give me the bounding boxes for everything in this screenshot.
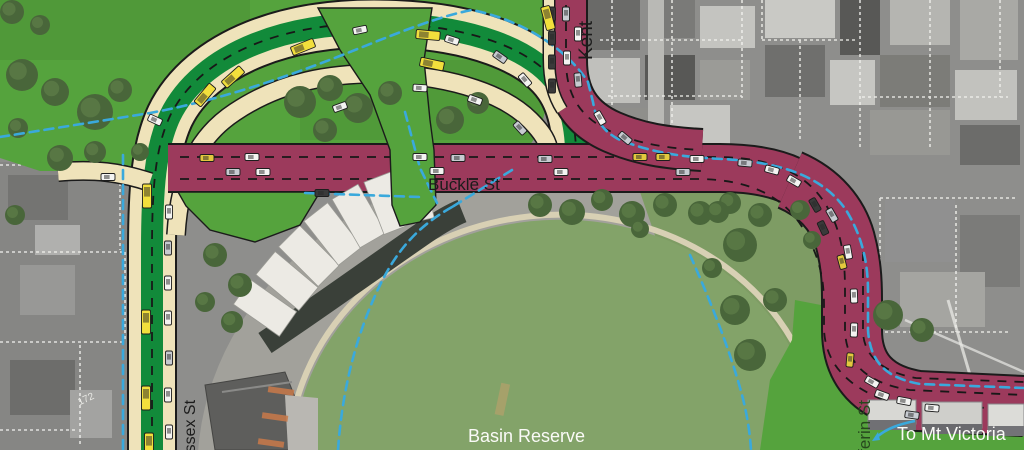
houses-west [0,162,128,450]
street-label-dufferin-st: Dufferin St [856,400,873,450]
basin-reserve-plan-map [0,0,1024,450]
street-label-buckle-st: Buckle St [428,176,500,193]
map-canvas: Buckle St Kent Sussex St Dufferin St Bas… [0,0,1024,450]
place-label-basin-reserve: Basin Reserve [468,427,585,445]
street-label-sussex-st: Sussex St [183,400,199,450]
direction-label-to-mt-victoria: To Mt Victoria [897,425,1006,443]
street-label-kent: Kent [577,21,596,60]
